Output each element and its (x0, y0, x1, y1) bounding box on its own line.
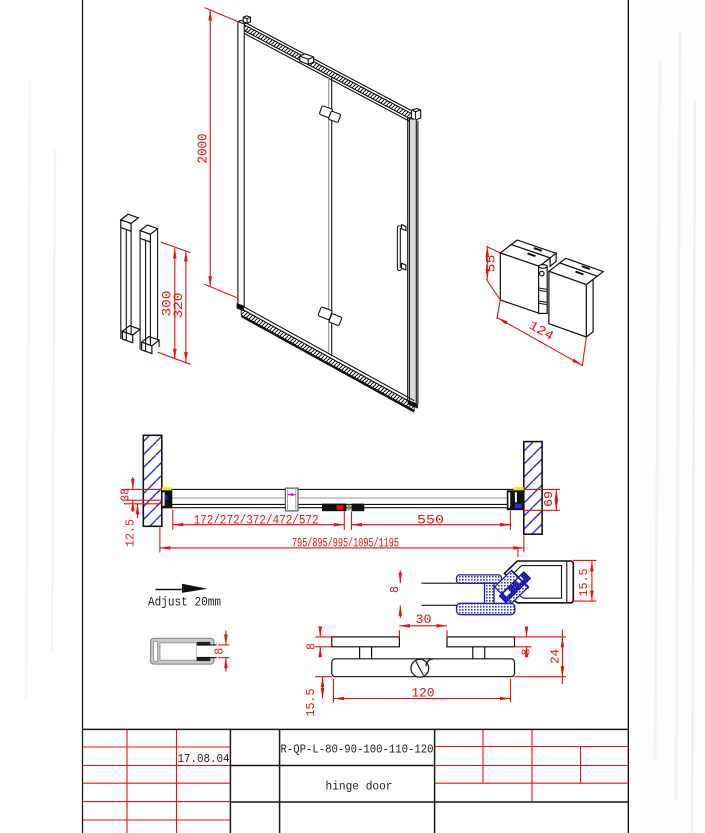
svg-text:795/895/995/1095/1195: 795/895/995/1095/1195 (292, 536, 399, 551)
svg-text:15.5: 15.5 (304, 689, 318, 717)
svg-text:8: 8 (214, 648, 227, 655)
svg-text:320: 320 (172, 293, 186, 319)
svg-text:2000: 2000 (197, 134, 212, 164)
svg-text:30: 30 (416, 613, 432, 627)
svg-text:55: 55 (485, 255, 499, 273)
svg-text:38: 38 (120, 488, 133, 501)
svg-text:550: 550 (417, 513, 444, 528)
svg-text:172/272/372/472/572: 172/272/372/472/572 (194, 513, 319, 528)
svg-text:12.5: 12.5 (125, 519, 138, 547)
svg-text:15.5: 15.5 (577, 569, 591, 597)
svg-text:17.08.04: 17.08.04 (178, 752, 230, 766)
svg-text:8: 8 (306, 643, 319, 650)
svg-text:120: 120 (412, 687, 435, 701)
svg-text:24: 24 (549, 649, 563, 664)
svg-text:Adjust 20mm: Adjust 20mm (148, 596, 221, 610)
svg-text:8: 8 (389, 586, 402, 593)
svg-text:R-QP-L-80-90-100-110-120: R-QP-L-80-90-100-110-120 (281, 743, 434, 757)
svg-text:hinge door: hinge door (326, 780, 393, 794)
svg-text:69: 69 (542, 491, 556, 507)
svg-text:8: 8 (521, 648, 534, 655)
